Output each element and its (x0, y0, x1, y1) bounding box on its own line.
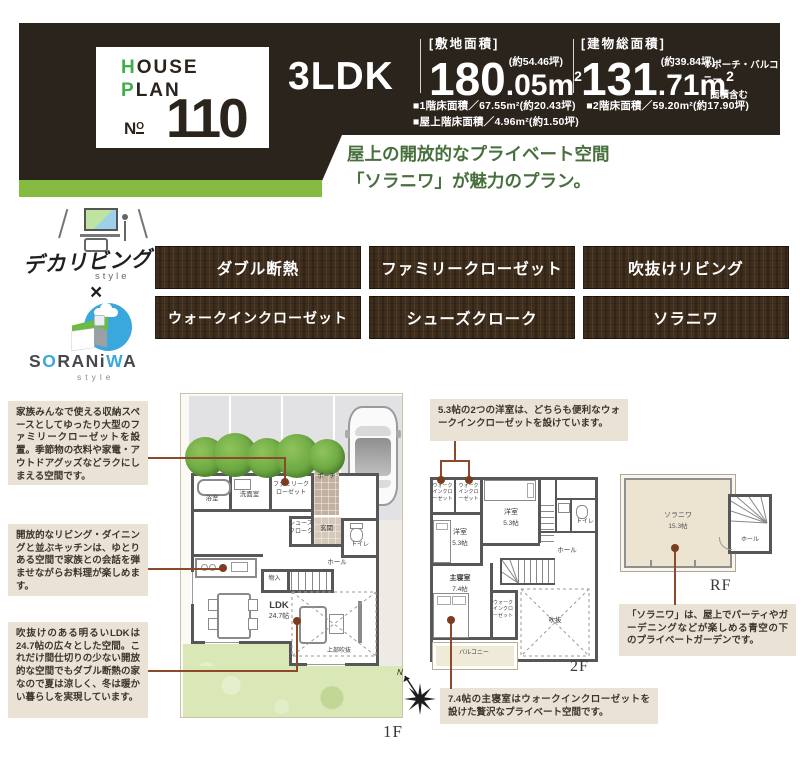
ldk-name: LDK (254, 600, 304, 611)
bedroom-name: 洋室 (442, 527, 478, 537)
callout-soraniwa: 「ソラニワ」は、屋上でパーティやガーデニングなどが楽しめる青空の下のプライベート… (619, 604, 796, 656)
card-house-line: HOUSE (121, 57, 199, 80)
stairs-fan-icon (731, 497, 769, 525)
bedroom-name: 洋室 (490, 507, 532, 517)
floor-area-line1: ■1階床面積／67.55m²(約20.43坪) ■2階床面積／59.20m²(約… (413, 98, 749, 113)
room-label-master: 主寝室 7.4帖 (440, 573, 480, 593)
stairs-upper-run (541, 501, 554, 542)
site-area-label: [敷地面積] (429, 33, 582, 52)
stairs-center-run (518, 560, 555, 583)
cloud-bump-icon (100, 303, 112, 314)
room-label-storage: 物入 (262, 576, 287, 584)
callout-master-bedroom: 7.4帖の主寝室はウォークインクローゼットを設けた贅沢なプライベート空間です。 (440, 688, 658, 724)
floor-label-1f: 1F (383, 722, 403, 742)
logo-cross: × (90, 281, 102, 305)
room-label-porch: ポーチ (314, 474, 339, 482)
bedroom-size: 5.3帖 (442, 537, 478, 547)
rf-stair-block: ホール (728, 494, 772, 554)
card-no: NO (124, 119, 144, 139)
floor-plan-rf: ソラニワ 15.3帖 ホール (620, 468, 775, 598)
plan-number: 110 (166, 91, 246, 146)
callout-ldk: 吹抜けのある明るいLDKは24.7帖の広々とした空間。これだけ間仕切りの少ない開… (8, 622, 148, 718)
right-ground-strip (379, 520, 402, 666)
room-label-balcony: バルコニー (446, 650, 502, 658)
lawn-bottom (183, 666, 402, 717)
room-label-bedroom-left: 洋室 5.3帖 (442, 527, 478, 547)
soraniwa-letter-a: A (123, 351, 137, 371)
compass-north-label: N (397, 668, 403, 677)
rooftop-box-icon (94, 315, 105, 326)
soraniwa-letter-w: W (106, 351, 123, 371)
feature-tag-shoes-cloak: シューズクローク (369, 296, 575, 339)
person-body-icon (124, 221, 126, 241)
house-front-icon (72, 328, 94, 350)
callout-kitchen: 開放的なリビング・ダイニングと並ぶキッチンは、ゆとりある空間で家族との会話を弾ま… (8, 524, 148, 596)
tv-board-icon (80, 234, 120, 237)
soraniwa-letters-mid: RANi (57, 351, 106, 371)
deck-tick (694, 560, 696, 568)
room-label-wic: ウォークインクローゼット (492, 600, 514, 619)
window (205, 641, 239, 644)
tagline-line1: 屋上の開放的なプライベート空間 (347, 141, 610, 168)
room-label-hall: ホール (315, 559, 359, 567)
room-label-bedroom-top: 洋室 5.3帖 (490, 507, 532, 527)
tagline: 屋上の開放的なプライベート空間 「ソラニワ」が魅力のプラン。 (347, 141, 610, 195)
room-label-bath: 浴室 (194, 495, 230, 503)
house-plan-card: HOUSE PLAN NO 110 (96, 47, 269, 148)
site-area-tsubo: (約54.46坪) (509, 57, 563, 68)
floor-plan-2f: ウォークインクローゼット ウォークインクローゼット 洋室 5.3帖 洋室 5.3… (428, 465, 613, 680)
bracket-left-icon (58, 209, 78, 241)
washbasin-icon (558, 503, 570, 513)
soraniwa-size: 15.3帖 (646, 520, 710, 530)
header-wedge (322, 135, 342, 181)
room-label-shoes: シューズクローク (289, 521, 313, 536)
soraniwa-style-label: style (77, 372, 114, 382)
floor-label-rf: RF (710, 577, 732, 595)
room-label-family-closet: ファミリークローゼット (272, 482, 310, 497)
bed-icon (484, 480, 536, 501)
person-head-icon (122, 214, 128, 220)
area-note-line1: ※ポーチ・バルコニー (703, 58, 783, 88)
ldk-type: 3LDK (288, 55, 394, 99)
stairs-winder-icon (502, 560, 518, 583)
header-green-stripe (19, 180, 322, 197)
deck-tick (650, 560, 652, 568)
room-label-toilet: トイレ (344, 542, 376, 550)
house-plan-flyer: HOUSE PLAN NO 110 3LDK [敷地面積] 180(約54.46… (0, 0, 800, 764)
feature-tag-family-closet: ファミリークローゼット (369, 246, 575, 289)
site-area-block: [敷地面積] 180(約54.46坪).05m2 (429, 33, 582, 102)
soraniwa-name: ソラニワ (646, 510, 710, 520)
soraniwa-logotype: SORANiWA (29, 351, 137, 372)
tree-icon (309, 439, 345, 475)
house-initial: H (121, 57, 137, 78)
site-area-value: 180(約54.46坪).05m2 (429, 56, 582, 102)
room-label-hall: ホール (733, 537, 767, 545)
tv-icon (84, 208, 118, 231)
no-n: N (124, 119, 136, 138)
building-area-label: [建物総面積] (581, 33, 734, 52)
floor-label-2f: 2F (570, 658, 589, 676)
soraniwa-letter-o: O (42, 351, 57, 371)
deka-living-logotype: デカリビング (22, 243, 152, 280)
room-label-wash: 洗面室 (231, 491, 268, 499)
compass-icon: N (396, 666, 444, 720)
no-o: O (136, 121, 144, 134)
dining-chair-icon (208, 618, 218, 630)
master-size: 7.4帖 (440, 583, 480, 593)
house-side-icon (94, 326, 107, 347)
callout-bedrooms: 5.3帖の2つの洋室は、どちらも便利なウォークインクローゼットを設けています。 (430, 399, 628, 441)
header-divider-1 (420, 39, 421, 93)
header-divider-2 (573, 39, 574, 93)
plan-initial: P (121, 80, 136, 101)
washbasin-icon (234, 479, 251, 490)
toilet-bowl-icon (576, 505, 588, 519)
soraniwa-letter-s: S (29, 351, 42, 371)
tagline-line2: 「ソラニワ」が魅力のプラン。 (347, 168, 610, 195)
room-label-wic: ウォークインクローゼット (431, 483, 454, 502)
room-label-toilet: トイレ (572, 519, 598, 527)
dining-table-icon (217, 593, 251, 639)
room-label-hall: ホール (550, 547, 584, 555)
toilet-bowl-icon (350, 528, 363, 542)
feature-tag-soraniwa: ソラニワ (583, 296, 789, 339)
window (191, 572, 194, 604)
bracket-right-icon (128, 209, 148, 241)
feature-tag-double-insulation: ダブル断熱 (155, 246, 361, 289)
room-label-void: 吹抜 (540, 617, 570, 625)
master-name: 主寝室 (440, 573, 480, 583)
bedroom-size: 5.3帖 (490, 517, 532, 527)
floor-area-line2: ■屋上階床面積／4.96m²(約1.50坪) (413, 114, 579, 129)
soraniwa-logo-mark (62, 303, 138, 353)
area-note: ※ポーチ・バルコニー 面積含む (703, 58, 783, 104)
house-rest: OUSE (137, 57, 199, 78)
feature-tag-walkin-closet: ウォークインクローゼット (155, 296, 361, 339)
room-label-wic: ウォークインクローゼット (457, 483, 480, 502)
bathtub-icon (197, 479, 231, 496)
room-label-soraniwa: ソラニワ 15.3帖 (646, 510, 710, 530)
feature-tag-void-living: 吹抜けリビング (583, 246, 789, 289)
room-label-genkan: 玄関 (313, 525, 340, 533)
dining-chair-icon (208, 599, 218, 611)
callout-family-closet: 家族みんなで使える収納スペースとしてゆったり大型のファミリークローゼットを設置。… (8, 401, 148, 485)
room-label-void-above: 上部吹抜 (317, 648, 361, 656)
stairs-1f (291, 572, 331, 590)
window (307, 663, 345, 666)
